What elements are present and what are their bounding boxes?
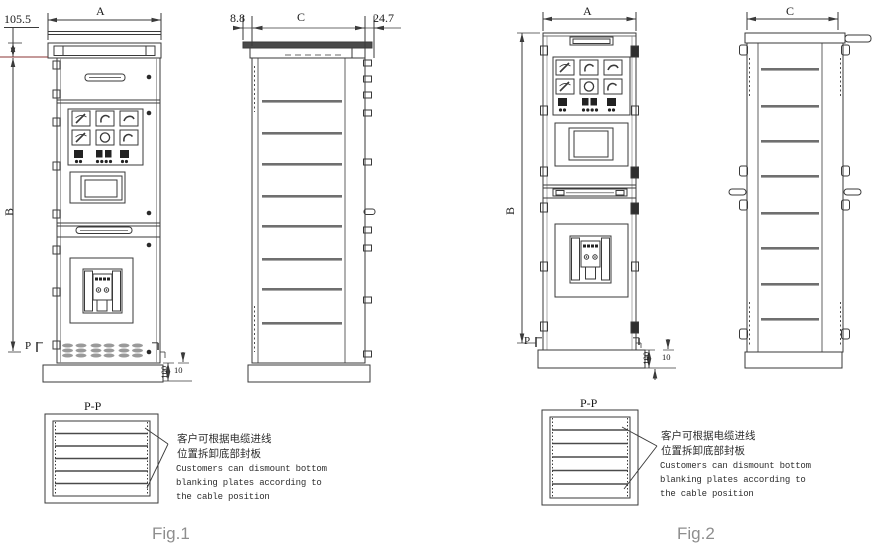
- fig1-bottom-louvers: [62, 344, 143, 358]
- fig2-section-title: P-P: [580, 397, 597, 409]
- fig1-dim-rear-offset-label: 24.7: [373, 12, 394, 24]
- fig1-note-en-line3: the cable position: [176, 493, 270, 502]
- fig1-top-vent-slot: [85, 74, 125, 81]
- fig1-base-plinth: [43, 365, 163, 382]
- fig2-base-height-label: 100: [642, 350, 651, 366]
- fig2-side-pin-left: [729, 189, 746, 195]
- fig1-note-en-line2: blanking plates according to: [176, 479, 322, 488]
- fig1-caption: Fig.1: [152, 525, 190, 542]
- fig2-dim-height-label: B: [504, 203, 516, 219]
- fig1-section-title: P-P: [84, 400, 101, 412]
- fig2-circuit-breaker: [555, 224, 628, 297]
- fig1-side-slats: [262, 100, 342, 325]
- gauge-meter-icon: [580, 79, 598, 94]
- gauge-meter-icon: [556, 79, 574, 94]
- fig2-base-plinth: [538, 350, 645, 368]
- gauge-meter-icon: [120, 111, 138, 126]
- gauge-meter-icon: [96, 130, 114, 145]
- fig2-display-screen: [555, 123, 628, 166]
- fig1-base-height-label: 100: [160, 364, 169, 380]
- fig1-note-en-line1: Customers can dismount bottom: [176, 465, 327, 474]
- gauge-meter-icon: [72, 111, 90, 126]
- fig2-mid-vent-slot: [553, 189, 627, 196]
- fig2-section-view: [542, 410, 657, 505]
- fig2-base-inset-label: 10: [662, 353, 671, 362]
- fig2-side-view: [729, 33, 871, 368]
- fig1-dim-front-offset-label: 8.8: [230, 12, 245, 24]
- gauge-meter-icon: [580, 60, 598, 75]
- fig2-meter-panel: [553, 57, 630, 115]
- gauge-meter-icon: [604, 60, 622, 75]
- fig1-note-leader-lines: [145, 428, 168, 488]
- fig1-dim-width-label: A: [96, 5, 105, 17]
- gauge-meter-icon: [72, 130, 90, 145]
- fig1-meter-panel: [68, 109, 143, 165]
- gauge-meter-icon: [604, 79, 622, 94]
- gauge-meter-icon: [120, 130, 138, 145]
- fig1-section-mark-label: P: [25, 341, 31, 352]
- fig2-note-zh-line1: 客户可根据电缆进线: [661, 431, 756, 442]
- fig2-side-slats: [761, 68, 819, 321]
- fig2-front-view: [538, 33, 645, 368]
- gauge-meter-icon: [96, 111, 114, 126]
- fig2-note-en-line3: the cable position: [660, 490, 754, 499]
- fig1-base-inset-label: 10: [174, 366, 183, 375]
- fig1-circuit-breaker: [70, 258, 133, 323]
- fig2-top-vent-slot: [570, 37, 613, 45]
- indicator-lamp-cluster: [558, 98, 616, 112]
- fig1-display-screen: [70, 172, 125, 203]
- fig2-dim-width-label: A: [583, 5, 592, 17]
- fig1-dim-top-label: 105.5: [4, 13, 31, 25]
- fig2-section-mark-label: P: [524, 336, 530, 347]
- fig2-note-zh-line2: 位置拆卸底部封板: [661, 446, 745, 457]
- fig2-side-base-plinth: [745, 352, 842, 368]
- fig1-side-view: [243, 42, 375, 382]
- technical-drawing-page: 105.5 A B 8.8 C 24.7 P 100 10 P-P 客户可根据电…: [0, 0, 881, 560]
- fig1-front-view: [43, 32, 163, 383]
- fig1-section-view: [45, 414, 168, 503]
- fig1-note-zh-line1: 客户可根据电缆进线: [177, 434, 272, 445]
- fig2-side-pin-right: [844, 189, 861, 195]
- fig2-side-hinges: [740, 45, 850, 339]
- fig2-note-en-line1: Customers can dismount bottom: [660, 462, 811, 471]
- fig2-caption: Fig.2: [677, 525, 715, 542]
- door-knob: [147, 75, 152, 80]
- fig2-note-en-line2: blanking plates according to: [660, 476, 806, 485]
- fig1-dim-depth-label: C: [297, 11, 305, 23]
- fig2-side-handle: [845, 35, 871, 42]
- indicator-lamp-cluster: [74, 150, 129, 163]
- fig1-dim-height-label: B: [3, 204, 15, 220]
- fig2-dim-depth-label: C: [786, 5, 794, 17]
- fig1-side-base-plinth: [248, 365, 370, 382]
- fig1-note-zh-line2: 位置拆卸底部封板: [177, 449, 261, 460]
- fig1-mid-vent-slot: [76, 227, 132, 234]
- gauge-meter-icon: [556, 60, 574, 75]
